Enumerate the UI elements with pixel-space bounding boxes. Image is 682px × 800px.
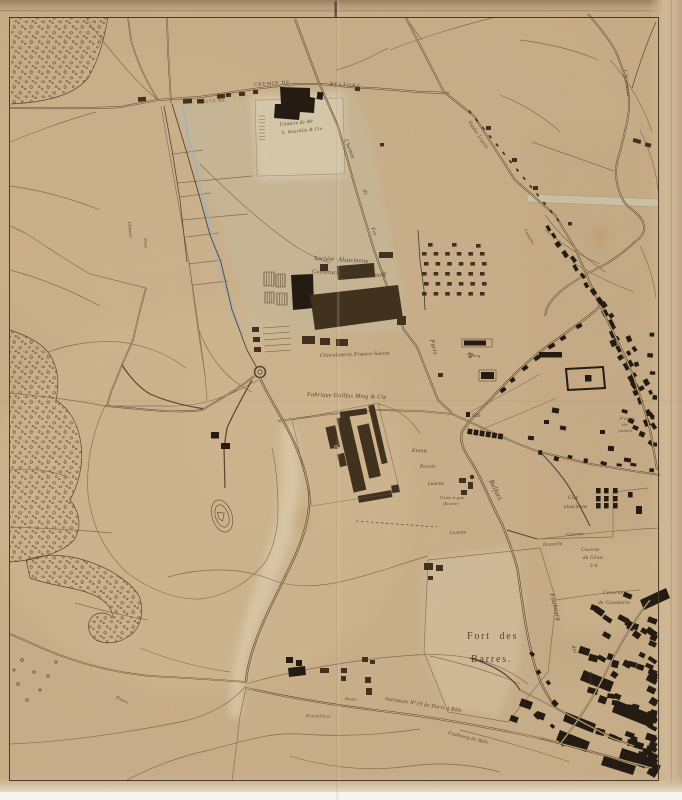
svg-text:thé: thé — [622, 422, 629, 427]
svg-text:3-4: 3-4 — [590, 564, 598, 569]
svg-text:(Ecurie): (Ecurie) — [443, 501, 459, 506]
svg-text:de Cavalerie.: de Cavalerie. — [598, 600, 632, 606]
svg-text:Essevilliers: Essevilliers — [305, 713, 331, 719]
svg-text:Vieux: Vieux — [143, 238, 149, 249]
svg-text:Caserne: Caserne — [566, 532, 585, 538]
svg-text:Usine à gaz: Usine à gaz — [440, 495, 464, 500]
svg-text:Caserne: Caserne — [603, 590, 624, 596]
svg-text:Percée: Percée — [419, 465, 436, 470]
svg-text:Etang.: Etang. — [411, 448, 428, 454]
svg-text:(ruines): (ruines) — [618, 429, 633, 433]
svg-text:du Génie: du Génie — [583, 556, 604, 561]
svg-text:Fort des: Fort des — [467, 631, 518, 642]
svg-text:P'tite à: P'tite à — [619, 416, 634, 421]
svg-text:Caserne: Caserne — [581, 548, 600, 553]
svg-text:Route: Route — [344, 696, 357, 702]
svg-text:alsacienne: alsacienne — [564, 505, 588, 510]
svg-text:Briq.: Briq. — [471, 353, 482, 358]
svg-text:Lunette: Lunette — [449, 530, 467, 536]
svg-text:Cité: Cité — [568, 495, 579, 501]
svg-text:Lunette: Lunette — [427, 482, 445, 487]
svg-text:Barres.: Barres. — [471, 654, 512, 665]
svg-text:549: 549 — [472, 412, 481, 419]
